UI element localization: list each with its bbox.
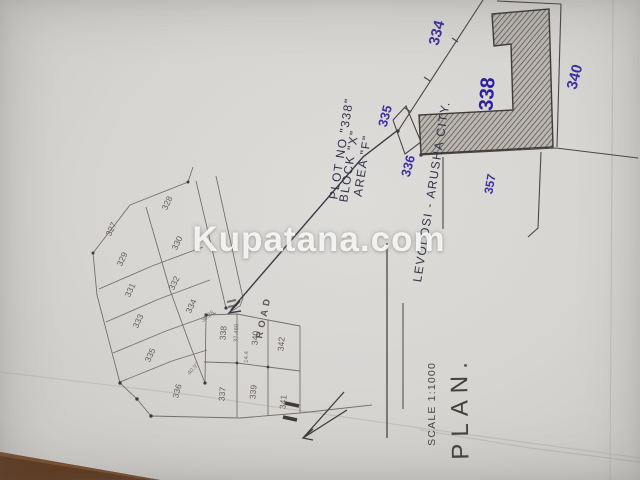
plan-plot-number: 340 (249, 330, 260, 345)
site-plan-photo: PLOT NO "338" BLOCK "X" AREA "F" LEVOLOS… (0, 0, 640, 480)
plan-plot-number: 342 (275, 336, 286, 351)
measurement-value: 14.4 (244, 351, 250, 363)
survey-beacons (92, 129, 423, 417)
north-arrow (283, 392, 347, 440)
plan-plot-number: 341 (277, 394, 288, 409)
site-plan-title: SITE PLAN. (446, 355, 477, 480)
detail-plot-number: 338 (475, 77, 500, 112)
title-underlines (387, 243, 403, 438)
watermark-text: Kupatana.com (192, 220, 445, 260)
scale-label: SCALE 1:1000 (426, 362, 438, 446)
plan-plot-number: 339 (247, 384, 258, 399)
plan-plot-number: 337 (216, 386, 227, 401)
plan-plot-number: 338 (217, 325, 228, 340)
measurement-value: 37.460 (234, 324, 241, 343)
plan-grid-lines (93, 167, 372, 418)
